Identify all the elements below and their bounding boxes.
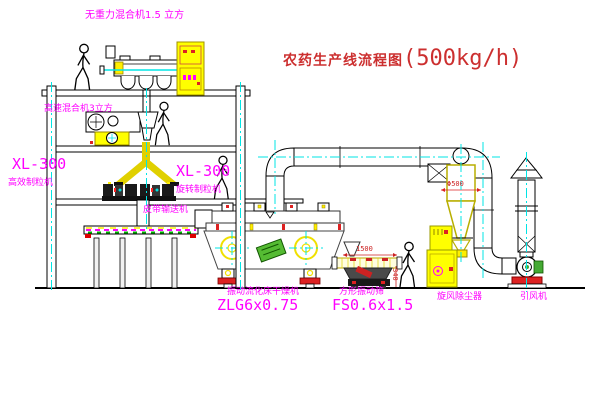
label-granulator-right: 旋转制粒机: [176, 186, 221, 195]
drawing-title: 农药生产线流程图(500kg/h): [283, 46, 522, 71]
label-granulator-left-model: XL-300: [12, 157, 66, 172]
control-cabinet-cyclone: [427, 226, 457, 287]
person-second-floor: [155, 102, 169, 145]
label-top-mixer: 无重力混合机1.5 立方: [85, 11, 184, 21]
gravity-free-mixer: [100, 46, 189, 89]
cad-drawing-canvas: 农药生产线流程图(500kg/h) 无重力混合机1.5 立方 高速混合机3立方 …: [0, 0, 600, 403]
dim-cyclone-diameter: Φ500: [447, 181, 464, 188]
belt-conveyor: [84, 226, 198, 288]
induced-draft-fan: [502, 257, 546, 288]
second-floor-mixer: [86, 112, 158, 146]
control-cabinet-top: [177, 42, 204, 95]
label-dryer-model: ZLG6x0.75: [217, 298, 298, 313]
dim-screen-height: 340: [391, 268, 398, 281]
title-chinese: 农药生产线流程图: [283, 53, 403, 69]
label-granulator-left: 高效制粒机: [8, 179, 53, 188]
label-screen-model: FS0.6x1.5: [332, 298, 413, 313]
label-cyclone: 旋风除尘器: [437, 293, 482, 302]
title-capacity: (500kg/h): [403, 46, 522, 71]
label-belt-conveyor: 皮带输送机: [143, 206, 188, 215]
person-roof: [75, 44, 90, 90]
label-fan: 引风机: [520, 293, 547, 302]
label-granulator-right-model: XL-300: [176, 164, 230, 179]
fluid-bed-dryer: [195, 203, 344, 288]
dim-screen-length: 1500: [356, 246, 373, 253]
label-second-mixer: 高速混合机3立方: [44, 105, 113, 114]
granulator-right: [139, 182, 176, 201]
